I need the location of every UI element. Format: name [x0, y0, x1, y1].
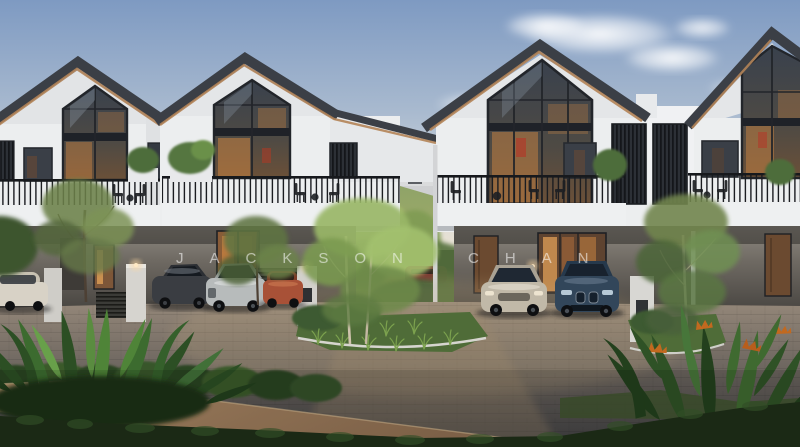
house-1-louver-window — [0, 141, 14, 181]
house-2-wing-window — [330, 143, 357, 178]
house-4-balcony-plant — [765, 159, 795, 185]
house-4-timber-door — [765, 234, 791, 296]
house-4-gable-window — [742, 46, 800, 178]
house-3-side-window — [564, 143, 596, 178]
house-3-louver-screen-right — [653, 124, 687, 204]
bmw-grille — [576, 292, 585, 303]
house-1-bedroom-window — [24, 148, 52, 181]
house-1-balcony-plant — [127, 147, 159, 173]
gate-pillar-1 — [126, 259, 146, 322]
house-4-side-window — [702, 141, 738, 177]
slat-fence-left — [96, 292, 126, 318]
scene-svg — [0, 0, 800, 447]
house-3-balcony-plant — [593, 149, 627, 181]
bottom-vignette — [0, 370, 800, 447]
pillar-lamp-1 — [134, 263, 138, 267]
rendering-canvas: JACKSON CHAN — [0, 0, 800, 447]
